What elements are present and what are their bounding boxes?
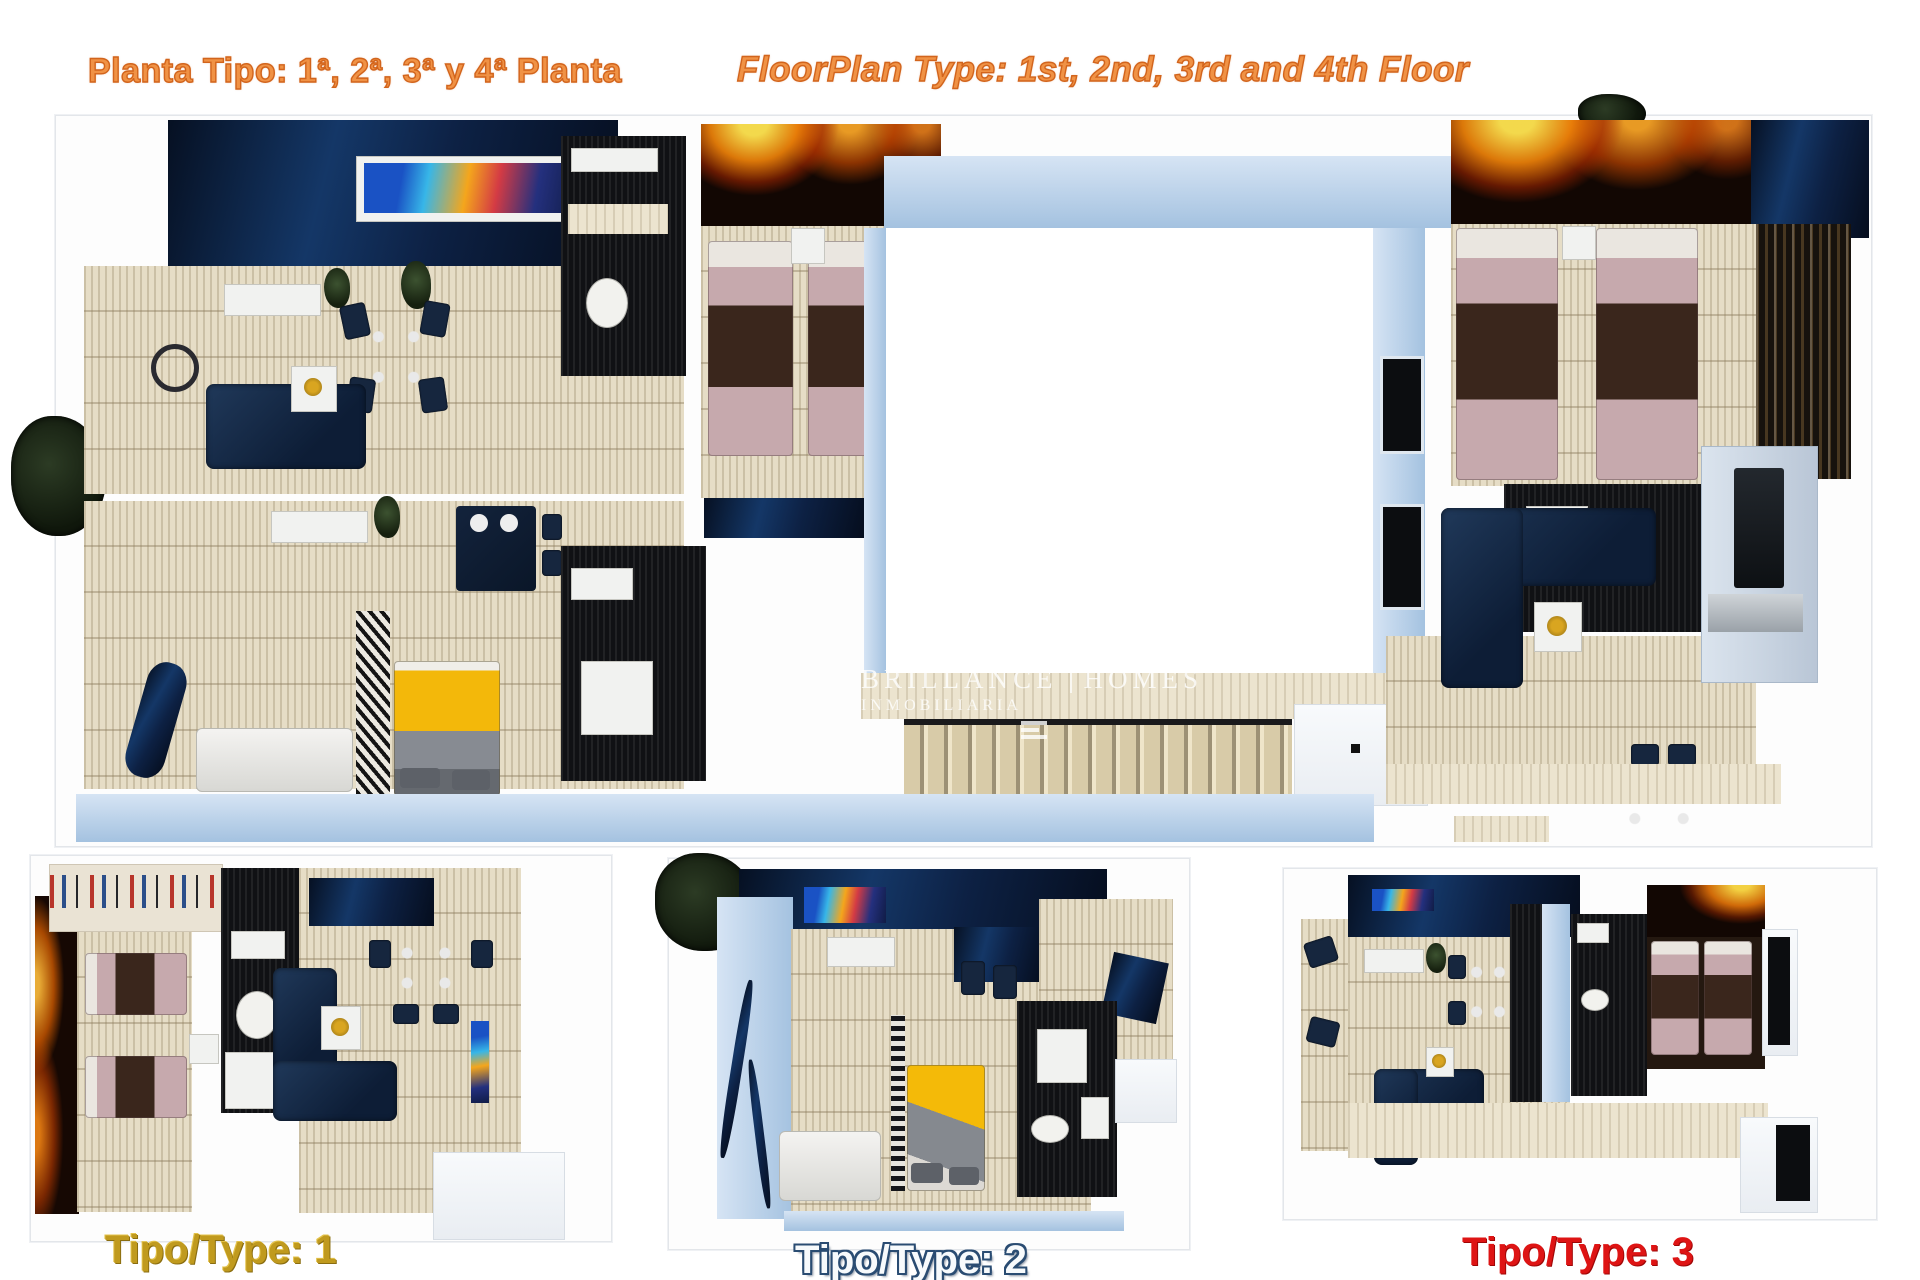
- chair: [1448, 955, 1466, 979]
- chair: [369, 940, 391, 968]
- door-handle-icon: [1351, 744, 1360, 753]
- patio-wall-top: [884, 156, 1524, 228]
- tv-screen-icon: [364, 163, 578, 213]
- watermark-brand-word2: HOMES: [1084, 664, 1204, 695]
- facade-walk: [1386, 764, 1781, 804]
- label-type1: Tipo/Type: 1: [105, 1228, 337, 1273]
- bed: [1651, 941, 1699, 1055]
- main-floorplan: BRILLANCE HOMES INMOBILIARIA: [55, 115, 1872, 847]
- terrace-right-dark: [1751, 120, 1869, 238]
- patio-wall-right: [1373, 228, 1425, 680]
- sideboard: [1364, 949, 1424, 973]
- pillow-icon: [400, 768, 440, 788]
- bathroom-1: [561, 136, 686, 376]
- page: Planta Tipo: 1ª, 2ª, 3ª y 4ª Planta Floo…: [0, 0, 1920, 1280]
- bed: [708, 241, 793, 456]
- sink: [1081, 1097, 1109, 1139]
- floorplan-type3: [1283, 868, 1877, 1220]
- plant-icon: [324, 268, 350, 308]
- nightstand: [1562, 226, 1596, 260]
- terrace-right-accent: [1451, 120, 1751, 238]
- sink: [1577, 923, 1609, 943]
- sofa-white: [196, 728, 353, 792]
- sofa-navy: [206, 384, 366, 469]
- watermark-logo-icon: [1021, 721, 1047, 739]
- tv-screen-icon: [1372, 889, 1434, 911]
- bedroom-accent-wall: [35, 896, 79, 1214]
- bed: [1456, 228, 1558, 480]
- decor-bowl-icon: [1547, 616, 1567, 636]
- wheel-decor-icon: [151, 344, 199, 392]
- patio-void: [886, 228, 1373, 673]
- watermark: BRILLANCE HOMES INMOBILIARIA: [861, 664, 1203, 742]
- nightstand: [189, 1034, 219, 1064]
- chair: [1631, 744, 1659, 766]
- sofa-navy-l-vertical: [1441, 508, 1523, 688]
- window-icon: [1776, 1125, 1810, 1201]
- watermark-subtitle: INMOBILIARIA: [861, 697, 1203, 715]
- stool-icon: [470, 514, 488, 532]
- sideboard: [224, 284, 321, 316]
- bed: [1596, 228, 1698, 480]
- plant-icon: [374, 496, 400, 538]
- tv-screen-icon: [471, 1021, 489, 1103]
- hall-wall: [1542, 904, 1570, 1102]
- bedroom-accent-wall: [1647, 885, 1765, 937]
- pillow-icon: [452, 770, 490, 790]
- kitchen-island: [456, 506, 536, 591]
- page-title-spanish: Planta Tipo: 1ª, 2ª, 3ª y 4ª Planta: [88, 52, 622, 91]
- floorplan-type1: [30, 855, 612, 1242]
- balcony: [433, 1152, 565, 1240]
- label-type3: Tipo/Type: 3: [1462, 1230, 1694, 1275]
- pillow-icon: [911, 1163, 943, 1183]
- page-title-english: FloorPlan Type: 1st, 2nd, 3rd and 4th Fl…: [737, 50, 1469, 90]
- chair: [418, 376, 448, 413]
- watermark-divider: [1070, 667, 1072, 693]
- fridge-icon: [1734, 468, 1784, 588]
- facade-band: [76, 794, 1374, 842]
- window-icon: [1380, 504, 1424, 610]
- toilet-icon: [1581, 989, 1609, 1011]
- bed: [1704, 941, 1752, 1055]
- decor-bowl-icon: [331, 1018, 349, 1036]
- sink: [571, 568, 633, 600]
- chair: [471, 940, 493, 968]
- facade-band: [784, 1211, 1124, 1231]
- sofa-white: [779, 1131, 881, 1201]
- kitchen-counter: [309, 878, 434, 926]
- tv-screen-icon: [804, 887, 886, 923]
- stool-icon: [961, 961, 985, 995]
- sideboard: [271, 511, 368, 543]
- console-table: [827, 937, 895, 967]
- shower-tray: [1037, 1029, 1087, 1083]
- chair: [433, 1004, 459, 1024]
- window-icon: [1380, 356, 1424, 454]
- toilet-icon: [236, 991, 278, 1039]
- stool-icon: [542, 514, 562, 540]
- shower-tray: [581, 661, 653, 735]
- kitchen-counter: [1708, 594, 1803, 632]
- toilet-icon: [586, 278, 628, 328]
- dining-table: [1462, 947, 1514, 1037]
- bed: [85, 1056, 187, 1118]
- bench: [1454, 816, 1549, 842]
- chair: [1668, 744, 1696, 766]
- wardrobe: [1756, 224, 1851, 479]
- decor-bowl-icon: [1432, 1054, 1446, 1068]
- room-divider: [356, 611, 390, 794]
- stool-icon: [500, 514, 518, 532]
- patio-wall-left: [864, 228, 886, 673]
- bed: [85, 953, 187, 1015]
- chair: [1448, 1001, 1466, 1025]
- tv-cabinet: [704, 498, 864, 538]
- nightstand: [791, 228, 825, 264]
- balcony: [1115, 1059, 1177, 1123]
- stool-icon: [993, 965, 1017, 999]
- plant-icon: [1426, 943, 1446, 973]
- dining-table: [383, 934, 469, 1002]
- floorplan-type2: [668, 858, 1190, 1250]
- window-icon: [1768, 937, 1790, 1045]
- sink: [231, 931, 285, 959]
- watermark-brand-word1: BRILLANCE: [861, 664, 1058, 695]
- toilet-icon: [1031, 1115, 1069, 1143]
- decor-bowl-icon: [304, 378, 322, 396]
- stool-icon: [542, 550, 562, 576]
- pillow-icon: [949, 1167, 979, 1185]
- corridor: [1348, 1103, 1768, 1158]
- room-divider: [891, 1015, 905, 1191]
- sofa-navy-l-horizontal: [273, 1061, 397, 1121]
- bath-counter: [568, 204, 668, 234]
- bath-shelf: [571, 148, 658, 172]
- label-type2: Tipo/Type: 2: [795, 1238, 1027, 1280]
- chair: [393, 1004, 419, 1024]
- closet: [49, 864, 223, 932]
